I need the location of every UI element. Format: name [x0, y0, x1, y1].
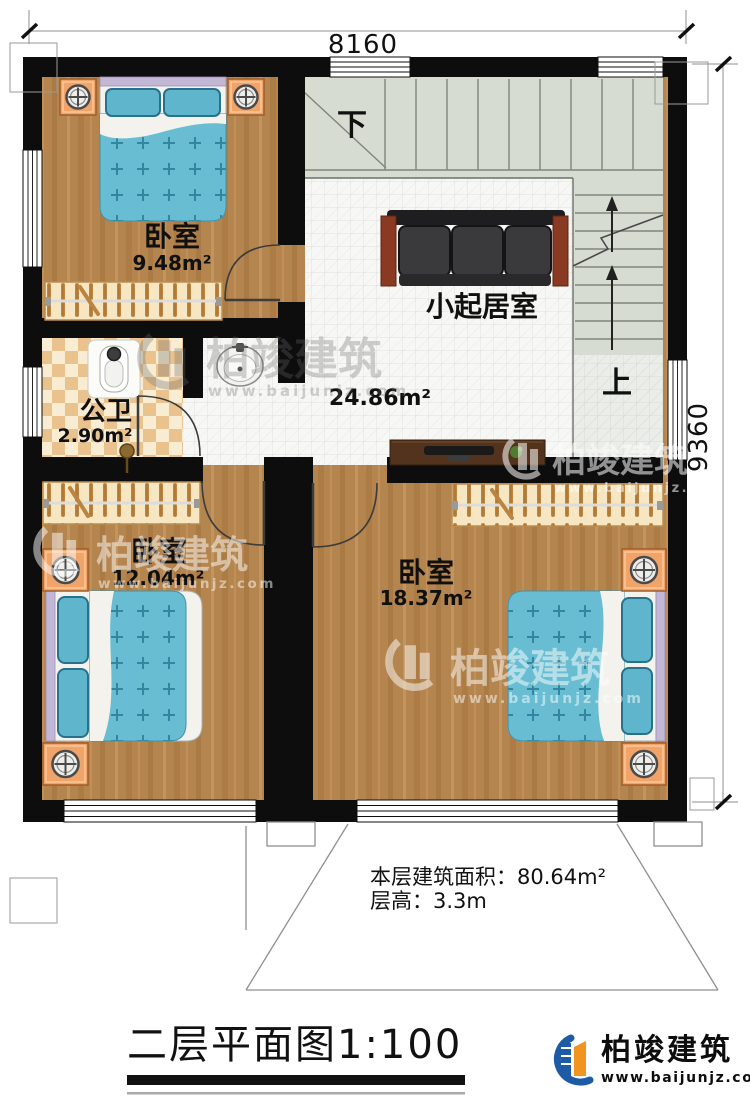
window-bottom-bedroom-left: [64, 800, 256, 822]
label-bedroom-left-area: 12.04m²: [112, 566, 205, 590]
wall-bathroom-top: [23, 318, 305, 338]
floor-plan-drawing: 卧室 9.48m² 小起居室 24.86m² 公卫 2.90m² 卧室 12.0…: [0, 0, 750, 1104]
wardrobe-bedroom-top: [45, 282, 222, 320]
brand-site: www.baijunjz.com: [601, 1070, 750, 1086]
label-bedroom-top: 卧室: [144, 220, 200, 253]
window-top-1: [330, 57, 410, 77]
wall-central: [264, 457, 313, 800]
dim-top-value: 8160: [328, 30, 398, 60]
sofa-cushion: [399, 226, 450, 276]
page-title: 二层平面图1:100: [127, 1022, 462, 1068]
wall-bedroom-top-right-b: [278, 302, 305, 383]
label-bedroom-top-area: 9.48m²: [133, 251, 212, 275]
label-living-area: 24.86m²: [329, 386, 431, 411]
pillow: [622, 598, 652, 662]
window-top-2: [598, 57, 663, 77]
pillow: [106, 89, 160, 116]
label-bath: 公卫: [80, 397, 132, 427]
note-floor-area: 本层建筑面积：80.64m²: [370, 865, 606, 889]
nightstand: [228, 79, 264, 115]
bed-bedroom-left: [46, 591, 202, 741]
nightstand: [622, 743, 666, 785]
pillow: [622, 668, 652, 734]
label-bedroom-right-area: 18.37m²: [380, 586, 473, 610]
title-block: 二层平面图1:100: [127, 1022, 465, 1095]
title-underline-thin: [127, 1092, 465, 1095]
bed-bedroom-top: [100, 77, 226, 221]
sofa-cushion: [505, 226, 551, 276]
wardrobe-bedroom-left: [43, 482, 200, 524]
window-left-bedroom-top: [23, 150, 42, 267]
pillow: [164, 89, 220, 116]
label-stair-down: 下: [337, 108, 367, 143]
brand-logo: 柏竣建筑 www.baijunjz.com: [557, 1033, 750, 1086]
wall-bedroom-top-right-a: [278, 77, 305, 245]
wardrobe-bedroom-right: [452, 484, 663, 526]
label-stair-up: 上: [602, 366, 632, 401]
nightstand: [43, 549, 88, 591]
wall-bathroom-right: [183, 338, 203, 398]
window-left-bathroom: [23, 367, 42, 437]
squat-toilet-icon: [88, 340, 140, 398]
sofa-cushion: [452, 226, 503, 276]
monitor-icon: [424, 446, 494, 455]
dim-right-value: 9360: [684, 402, 714, 472]
pillow: [58, 669, 88, 737]
label-living: 小起居室: [426, 290, 538, 323]
wall-bedroom-left-top: [23, 457, 203, 483]
label-bedroom-right: 卧室: [398, 556, 454, 589]
label-bedroom-left: 卧室: [131, 535, 187, 568]
headboard: [656, 591, 665, 741]
floor-notes: 本层建筑面积：80.64m² 层高：3.3m: [370, 865, 606, 913]
floor-plan-page: 卧室 9.48m² 小起居室 24.86m² 公卫 2.90m² 卧室 12.0…: [0, 0, 750, 1104]
nightstand: [43, 743, 88, 785]
window-bottom-bedroom-right: [357, 800, 618, 822]
brand-name: 柏竣建筑: [601, 1033, 733, 1068]
title-underline: [127, 1075, 465, 1085]
nightstand: [622, 549, 666, 591]
headboard: [100, 77, 226, 86]
note-floor-height: 层高：3.3m: [370, 889, 487, 913]
label-bath-area: 2.90m²: [58, 425, 133, 447]
brand-logo-icon: [557, 1038, 590, 1082]
nightstand: [60, 79, 96, 115]
pillow: [58, 597, 88, 663]
bed-bedroom-right: [508, 591, 665, 741]
headboard: [46, 591, 55, 741]
desk: [390, 440, 545, 465]
sofa: [381, 210, 568, 286]
